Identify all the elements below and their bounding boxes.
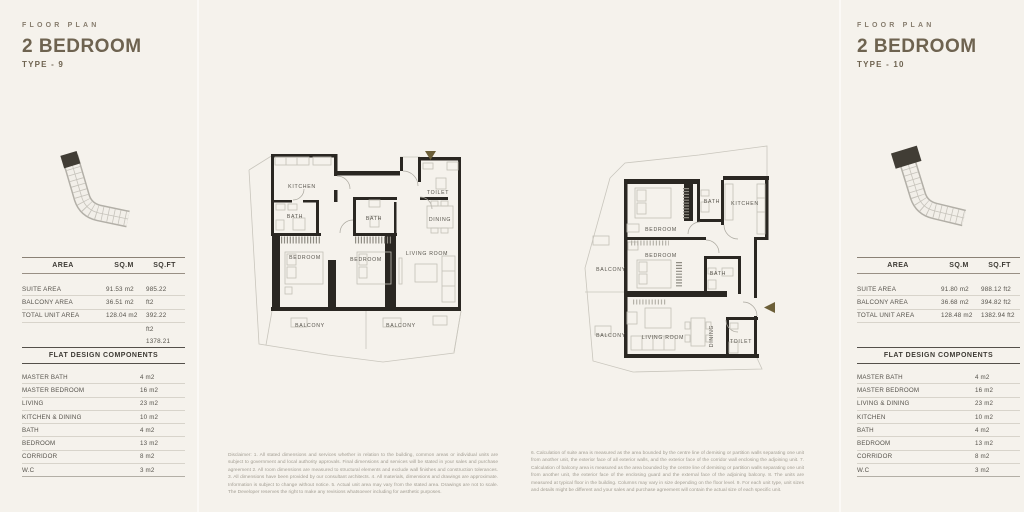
- room-label-bath: BATH: [704, 199, 720, 205]
- type-label: TYPE - 10: [857, 60, 905, 69]
- room-label-bedroom: BEDROOM: [350, 257, 382, 263]
- room-label-balcony: BALCONY: [386, 323, 416, 329]
- area-table-header: AREA SQ.M SQ.FT: [857, 257, 1020, 274]
- room-labels: BEDROOM BATH KITCHEN BEDROOM BATH LIVING…: [596, 199, 759, 347]
- table-row: W.C3 m2: [22, 464, 185, 477]
- floor-plan-eyebrow: FLOOR PLAN: [857, 22, 935, 29]
- table-row: MASTER BATH4 m2: [22, 371, 185, 384]
- table-row: BATH4 m2: [857, 424, 1020, 437]
- room-label-living: LIVING ROOM: [406, 251, 448, 257]
- table-row: BALCONY AREA 36.51 m2 ft2: [22, 296, 185, 309]
- panel-seam-left: [197, 0, 199, 512]
- keyplan-building-icon: [884, 144, 972, 230]
- col-area: AREA: [22, 262, 104, 269]
- page-title: 2 BEDROOM: [22, 36, 142, 58]
- table-row: BEDROOM13 m2: [22, 437, 185, 450]
- col-sqm: SQ.M: [939, 262, 979, 269]
- col-sqft: SQ.FT: [979, 262, 1020, 269]
- area-table: AREA SQ.M SQ.FT SUITE AREA 91.53 m2 985.…: [22, 257, 185, 348]
- table-row: TOTAL UNIT AREA 128.04 m2 392.22: [22, 310, 185, 323]
- walls: [271, 154, 461, 311]
- col-sqft: SQ.FT: [144, 262, 185, 269]
- components-title: FLAT DESIGN COMPONENTS: [857, 347, 1020, 364]
- table-row: W.C3 m2: [857, 464, 1020, 477]
- table-row: TOTAL UNIT AREA 128.48 m2 1382.94 ft2: [857, 310, 1020, 323]
- room-label-bedroom: BEDROOM: [289, 255, 321, 261]
- table-row: KITCHEN & DINING10 m2: [22, 411, 185, 424]
- entry-arrow-icon: [764, 302, 775, 313]
- table-row: CORRIDOR8 m2: [857, 451, 1020, 464]
- table-row: BALCONY AREA 36.68 m2 394.82 ft2: [857, 296, 1020, 309]
- table-row: LIVING & DINING23 m2: [857, 398, 1020, 411]
- room-label-bath: BATH: [710, 271, 726, 277]
- floor-plan-type-9: KITCHEN BATH BEDROOM BATH BEDROOM LIVING…: [233, 140, 483, 375]
- room-label-kitchen: KITCHEN: [731, 201, 759, 207]
- table-row: LIVING23 m2: [22, 398, 185, 411]
- components-table: MASTER BATH4 m2 MASTER BEDROOM16 m2 LIVI…: [857, 371, 1020, 477]
- floor-plan-eyebrow: FLOOR PLAN: [22, 22, 100, 29]
- room-label-balcony: BALCONY: [596, 333, 626, 339]
- area-table: AREA SQ.M SQ.FT SUITE AREA 91.80 m2 988.…: [857, 257, 1020, 323]
- disclaimer-right: 6. Calculation of suite area is measured…: [531, 450, 804, 495]
- room-label-toilet: TOILET: [730, 339, 752, 345]
- disclaimer-left: Disclaimer: 1. All stated dimensions and…: [228, 452, 498, 497]
- room-label-dining: DINING: [429, 217, 451, 223]
- col-area: AREA: [857, 262, 939, 269]
- keyplan-building-icon: [50, 146, 134, 228]
- right-info-panel: FLOOR PLAN 2 BEDROOM TYPE - 10 AREA SQ.M…: [857, 0, 1020, 512]
- panel-seam-right: [839, 0, 841, 512]
- type-label: TYPE - 9: [22, 60, 64, 69]
- table-row: SUITE AREA 91.53 m2 985.22: [22, 283, 185, 296]
- room-label-bedroom: BEDROOM: [645, 253, 677, 259]
- room-label-kitchen: KITCHEN: [288, 184, 316, 190]
- components-title: FLAT DESIGN COMPONENTS: [22, 347, 185, 364]
- page-title: 2 BEDROOM: [857, 36, 977, 58]
- floor-plan-type-10: BEDROOM BATH KITCHEN BEDROOM BATH LIVING…: [555, 140, 805, 380]
- area-table-header: AREA SQ.M SQ.FT: [22, 257, 185, 274]
- components-table: MASTER BATH4 m2 MASTER BEDROOM16 m2 LIVI…: [22, 371, 185, 477]
- col-sqm: SQ.M: [104, 262, 144, 269]
- room-label-bath: BATH: [366, 216, 382, 222]
- room-label-bath: BATH: [287, 214, 303, 220]
- table-row: KITCHEN10 m2: [857, 411, 1020, 424]
- room-label-dining: DINING: [709, 325, 715, 347]
- table-row: CORRIDOR8 m2: [22, 451, 185, 464]
- room-label-living: LIVING ROOM: [642, 335, 684, 341]
- table-row: MASTER BEDROOM16 m2: [22, 384, 185, 397]
- room-label-balcony: BALCONY: [596, 267, 626, 273]
- room-label-toilet: TOILET: [427, 190, 449, 196]
- floor-plan-page: FLOOR PLAN 2 BEDROOM TYPE - 9 AREA SQ.M …: [0, 0, 1024, 512]
- left-info-panel: FLOOR PLAN 2 BEDROOM TYPE - 9 AREA SQ.M …: [22, 0, 185, 512]
- room-label-balcony: BALCONY: [295, 323, 325, 329]
- table-row: SUITE AREA 91.80 m2 988.12 ft2: [857, 283, 1020, 296]
- table-row: BATH4 m2: [22, 424, 185, 437]
- table-row: ft2: [22, 323, 185, 335]
- table-row: BEDROOM13 m2: [857, 437, 1020, 450]
- table-row: MASTER BEDROOM16 m2: [857, 384, 1020, 397]
- room-label-bedroom: BEDROOM: [645, 227, 677, 233]
- table-row: MASTER BATH4 m2: [857, 371, 1020, 384]
